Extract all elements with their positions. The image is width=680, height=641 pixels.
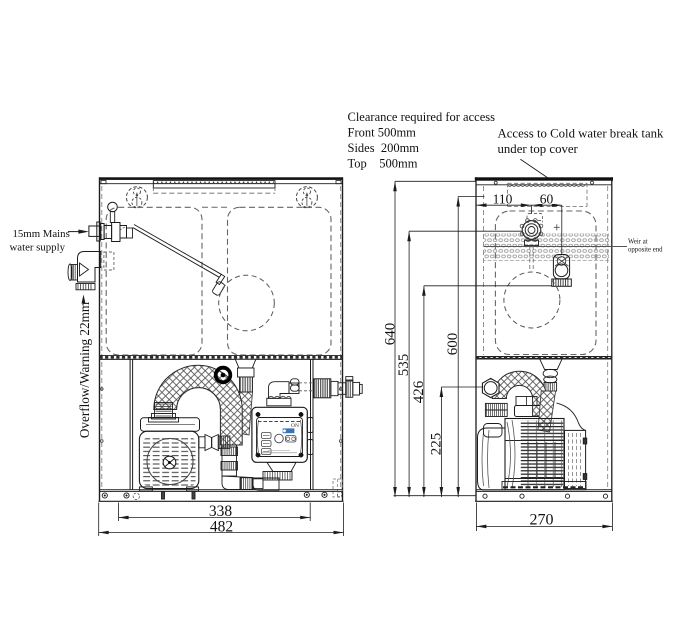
svg-text:535: 535 (396, 354, 412, 377)
svg-text:Front 500mm: Front 500mm (348, 126, 417, 140)
svg-text:Weir at: Weir at (628, 239, 648, 246)
svg-text:Sides 200mm: Sides 200mm (348, 141, 420, 155)
svg-text:Top 500mm: Top 500mm (348, 157, 418, 171)
svg-text:270: 270 (530, 512, 554, 529)
svg-text:Access to Cold water break tan: Access to Cold water break tank (498, 127, 665, 141)
svg-text:15mm Mains: 15mm Mains (13, 228, 70, 240)
svg-text:60: 60 (540, 191, 554, 206)
svg-text:water supply: water supply (10, 242, 66, 254)
svg-text:426: 426 (411, 380, 427, 403)
svg-text:opposite end: opposite end (628, 247, 663, 254)
svg-text:640: 640 (382, 323, 398, 346)
svg-text:under top cover: under top cover (498, 142, 579, 156)
svg-text:110: 110 (493, 191, 513, 206)
svg-text:ON: ON (291, 423, 299, 429)
svg-text:Clearance required for access: Clearance required for access (348, 110, 496, 124)
svg-text:600: 600 (445, 333, 461, 356)
svg-text:482: 482 (210, 518, 233, 535)
svg-text:Overflow/Warning 22mm: Overflow/Warning 22mm (77, 301, 92, 438)
svg-text:225: 225 (428, 433, 444, 456)
